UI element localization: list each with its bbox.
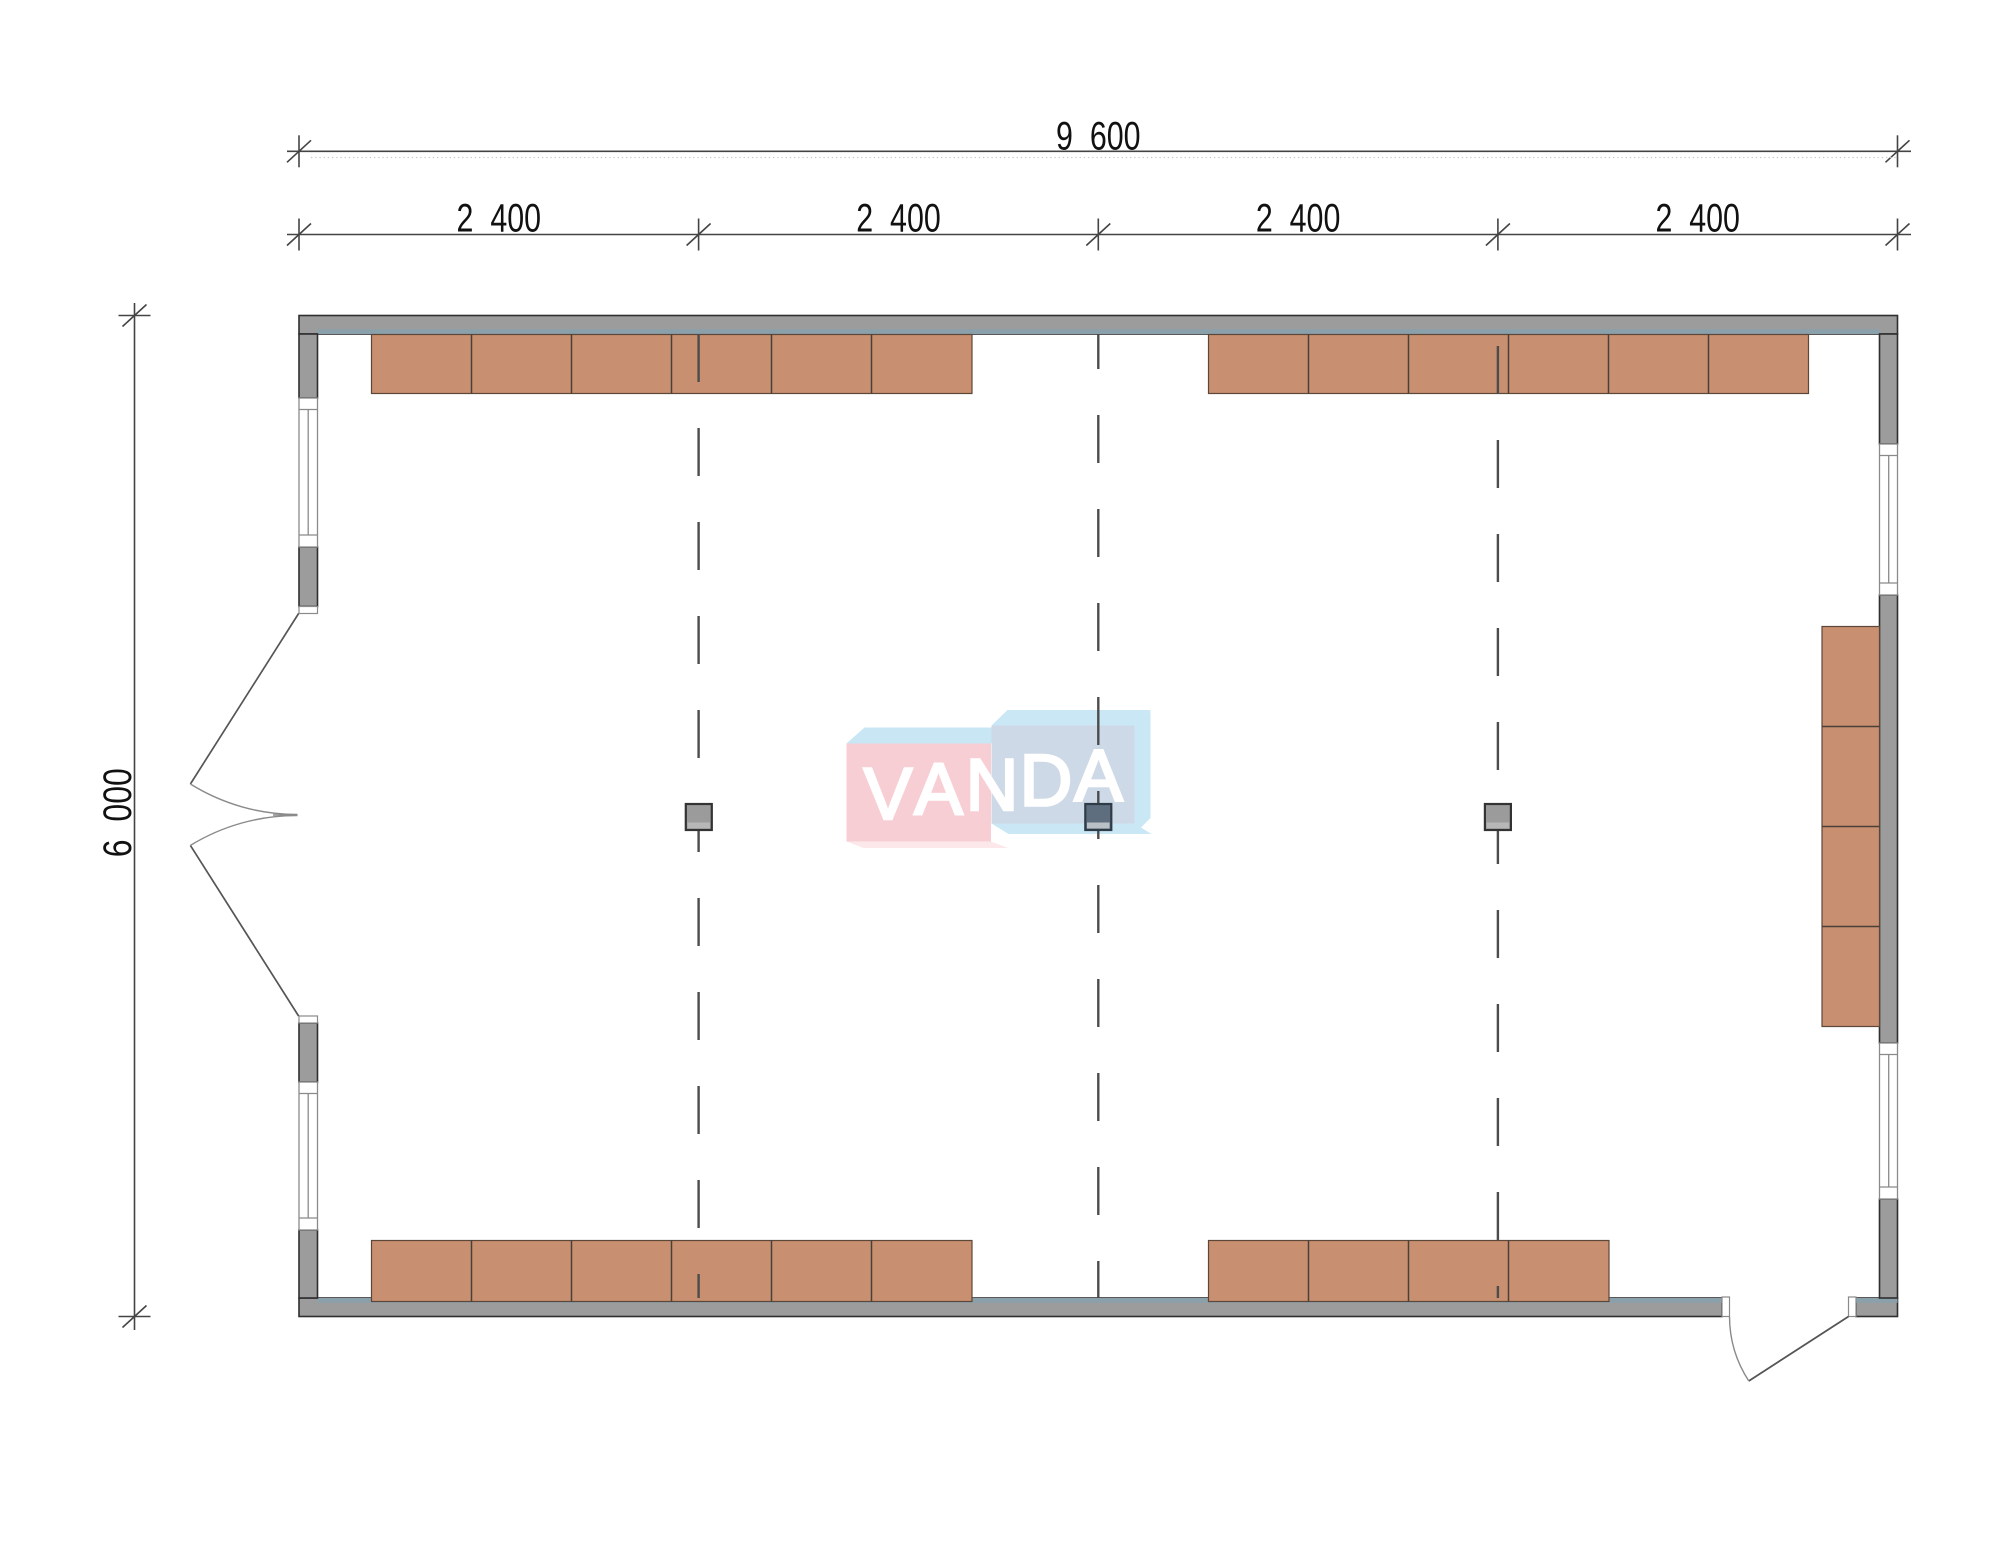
svg-text:N: N — [966, 745, 1019, 826]
svg-text:D: D — [1020, 741, 1073, 822]
svg-text:2 400: 2 400 — [1256, 197, 1341, 241]
svg-text:A: A — [914, 750, 963, 831]
svg-text:2 400: 2 400 — [1655, 197, 1740, 241]
svg-text:9 600: 9 600 — [1056, 115, 1141, 159]
svg-text:2 400: 2 400 — [856, 197, 941, 241]
svg-text:V: V — [864, 754, 913, 835]
svg-text:6 000: 6 000 — [96, 768, 140, 857]
svg-text:2 400: 2 400 — [457, 197, 542, 241]
